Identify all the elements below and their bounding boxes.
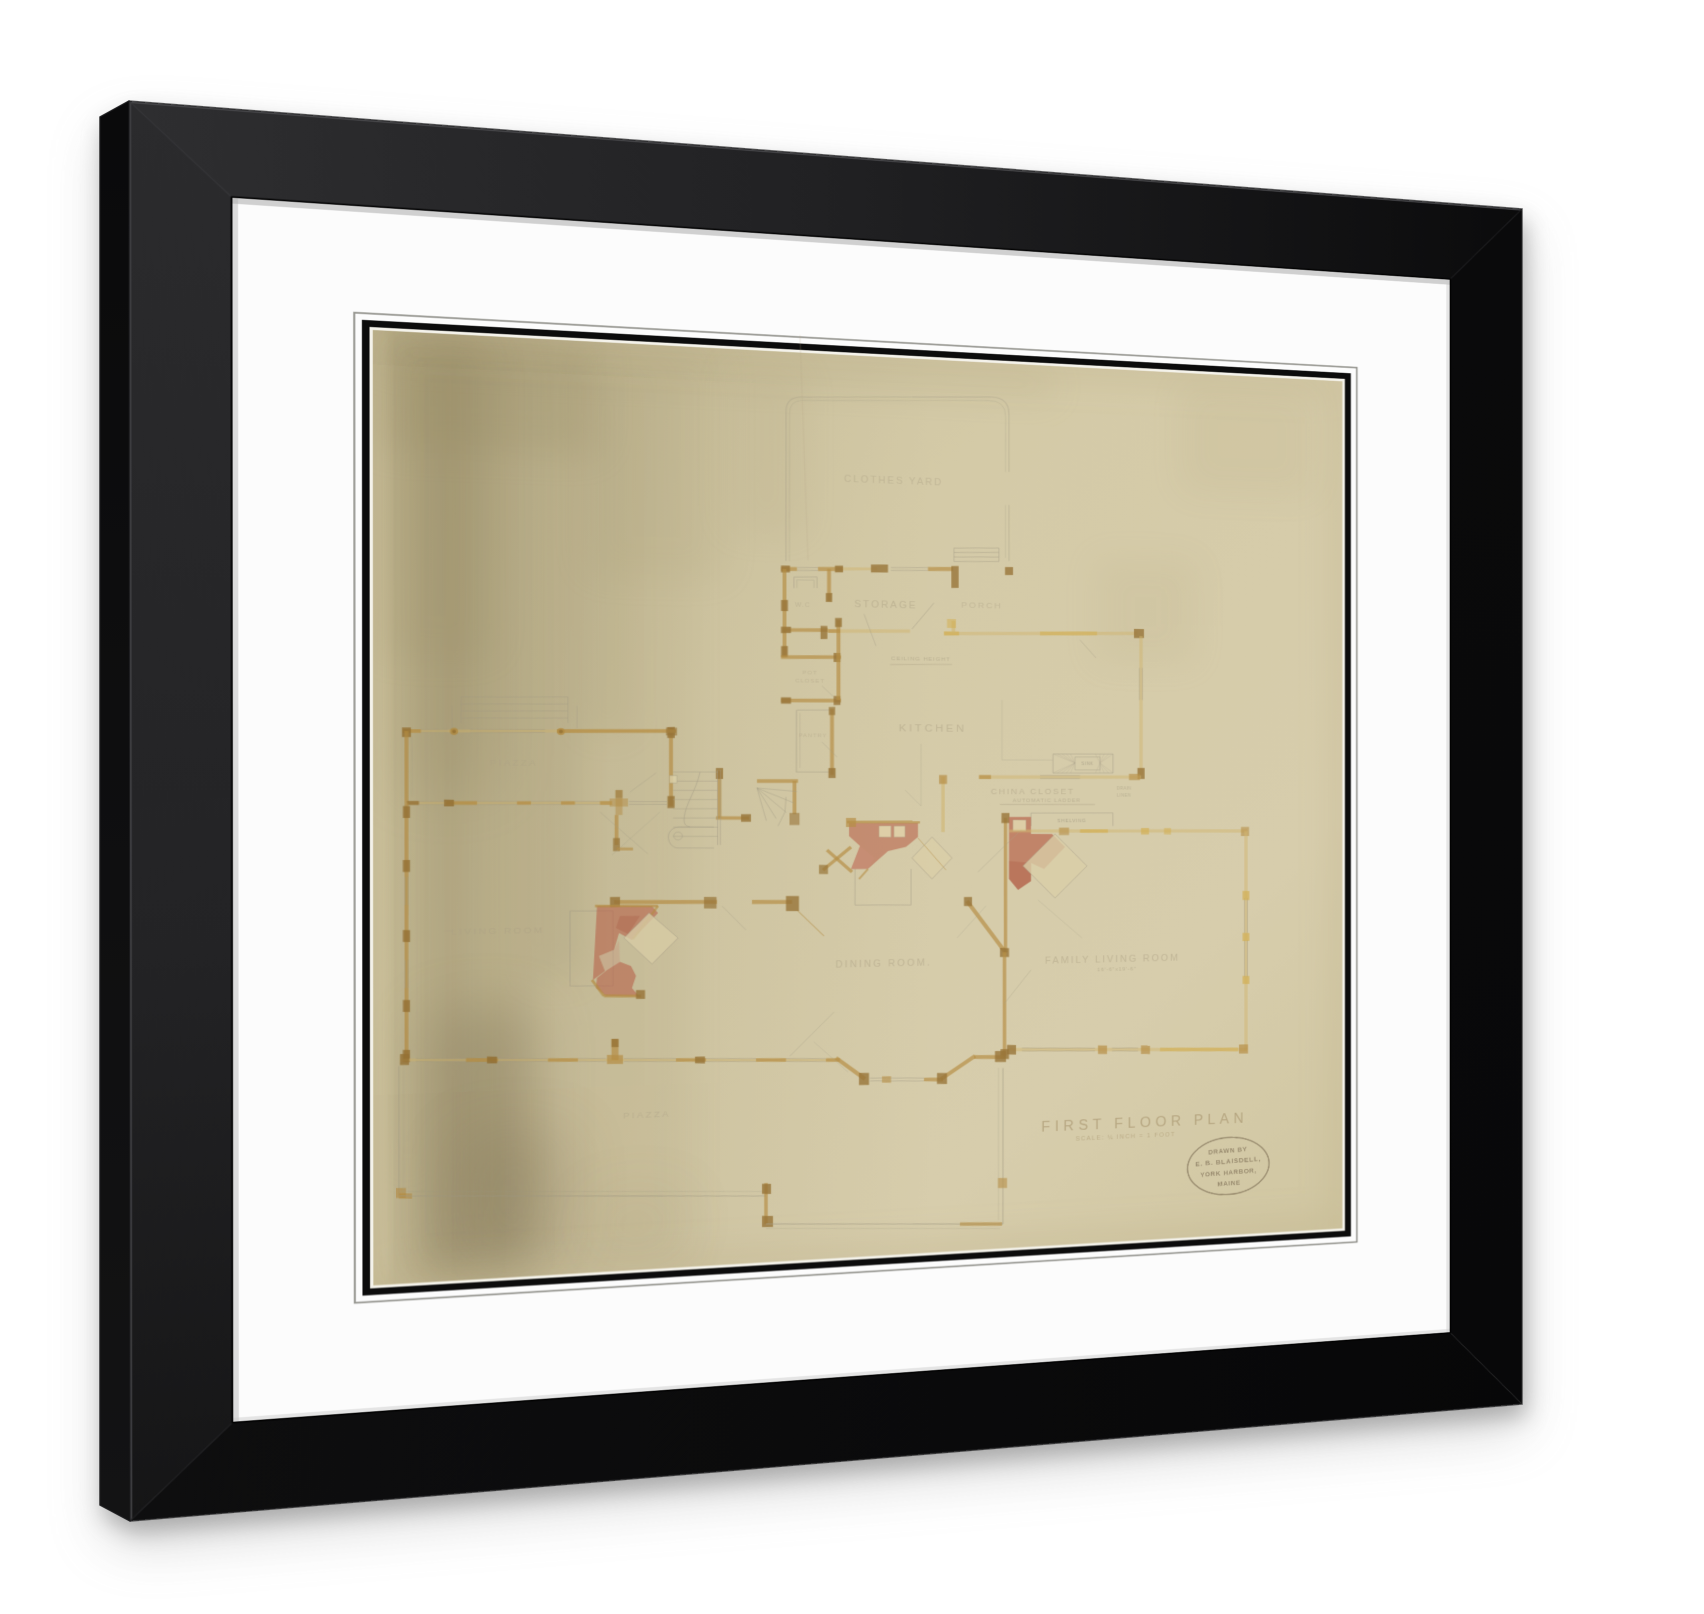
svg-text:CHINA CLOSET: CHINA CLOSET xyxy=(991,787,1075,796)
svg-text:16'-6"x19'-6": 16'-6"x19'-6" xyxy=(1097,966,1136,973)
svg-text:W.C: W.C xyxy=(795,601,811,609)
svg-text:AUTOMATIC LADDER: AUTOMATIC LADDER xyxy=(1013,798,1081,804)
svg-text:CLOSET: CLOSET xyxy=(795,679,825,685)
svg-text:POT: POT xyxy=(802,670,817,676)
svg-text:KITCHEN: KITCHEN xyxy=(899,723,967,735)
svg-text:LINEN: LINEN xyxy=(1117,794,1131,799)
svg-text:PIAZZA: PIAZZA xyxy=(490,759,538,769)
svg-text:CEILING HEIGHT: CEILING HEIGHT xyxy=(891,656,950,663)
svg-text:LIVING ROOM: LIVING ROOM xyxy=(451,925,545,937)
svg-text:SHELVING: SHELVING xyxy=(1057,819,1086,824)
svg-text:SINK: SINK xyxy=(1081,762,1093,767)
svg-text:PORCH: PORCH xyxy=(961,601,1002,611)
svg-text:DRAIN: DRAIN xyxy=(1117,787,1132,792)
svg-text:PANTRY: PANTRY xyxy=(799,733,827,739)
svg-text:PIAZZA: PIAZZA xyxy=(623,1110,671,1121)
svg-text:STORAGE: STORAGE xyxy=(854,600,917,611)
